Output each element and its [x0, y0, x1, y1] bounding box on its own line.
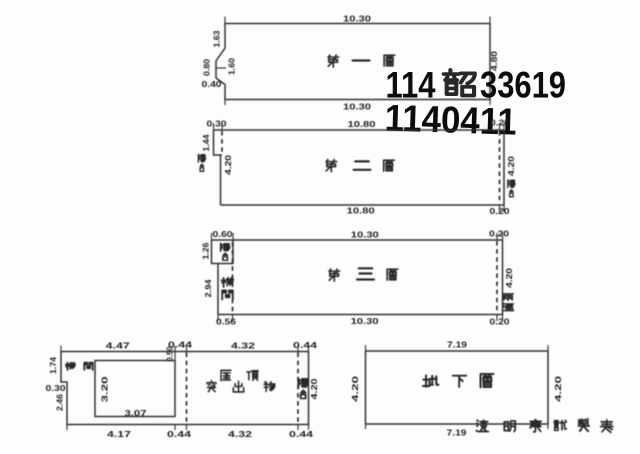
svg-text:10.30: 10.30 — [343, 102, 372, 111]
svg-text:0.44: 0.44 — [167, 430, 192, 439]
svg-text:4.20: 4.20 — [224, 154, 233, 175]
svg-text:4.47: 4.47 — [106, 341, 131, 350]
svg-text:1.26: 1.26 — [202, 242, 211, 259]
svg-text:4.32: 4.32 — [231, 342, 256, 351]
svg-text:10.30: 10.30 — [351, 231, 380, 240]
svg-text:3.07: 3.07 — [125, 409, 148, 418]
svg-text:7.19: 7.19 — [447, 429, 468, 438]
svg-text:0.56: 0.56 — [216, 318, 237, 327]
svg-text:0.40: 0.40 — [202, 80, 223, 89]
svg-text:10.30: 10.30 — [343, 15, 372, 24]
svg-text:4.20: 4.20 — [310, 378, 319, 400]
svg-text:1.60: 1.60 — [228, 58, 237, 75]
svg-text:0.20: 0.20 — [490, 119, 511, 128]
svg-text:10.80: 10.80 — [348, 120, 377, 129]
svg-text:0.44: 0.44 — [289, 430, 314, 439]
svg-text:4.17: 4.17 — [107, 430, 132, 439]
svg-text:1.74: 1.74 — [49, 357, 58, 374]
svg-text:4.20: 4.20 — [507, 155, 516, 176]
svg-text:2.46: 2.46 — [56, 394, 65, 411]
svg-text:0.30: 0.30 — [207, 120, 228, 129]
svg-text:0.30: 0.30 — [46, 384, 67, 393]
svg-text:0.20: 0.20 — [490, 318, 511, 327]
svg-text:4.20: 4.20 — [351, 375, 360, 402]
svg-text:10.80: 10.80 — [347, 207, 376, 216]
svg-text:3.20: 3.20 — [101, 376, 110, 403]
svg-text:4.20: 4.20 — [505, 267, 514, 288]
svg-text:0.20: 0.20 — [490, 207, 511, 216]
svg-text:4.32: 4.32 — [228, 430, 253, 439]
svg-text:0.80: 0.80 — [203, 59, 212, 76]
svg-text:1.63: 1.63 — [213, 30, 222, 47]
svg-text:4.20: 4.20 — [554, 375, 563, 402]
svg-text:1.44: 1.44 — [202, 134, 211, 151]
svg-text:7.19: 7.19 — [447, 341, 468, 350]
svg-text:10.30: 10.30 — [351, 317, 380, 326]
svg-text:0.20: 0.20 — [489, 230, 510, 239]
svg-text:0.44: 0.44 — [293, 341, 318, 350]
svg-text:2.94: 2.94 — [204, 279, 213, 298]
svg-text:0.60: 0.60 — [213, 230, 234, 239]
svg-text:0.50: 0.50 — [166, 346, 175, 362]
